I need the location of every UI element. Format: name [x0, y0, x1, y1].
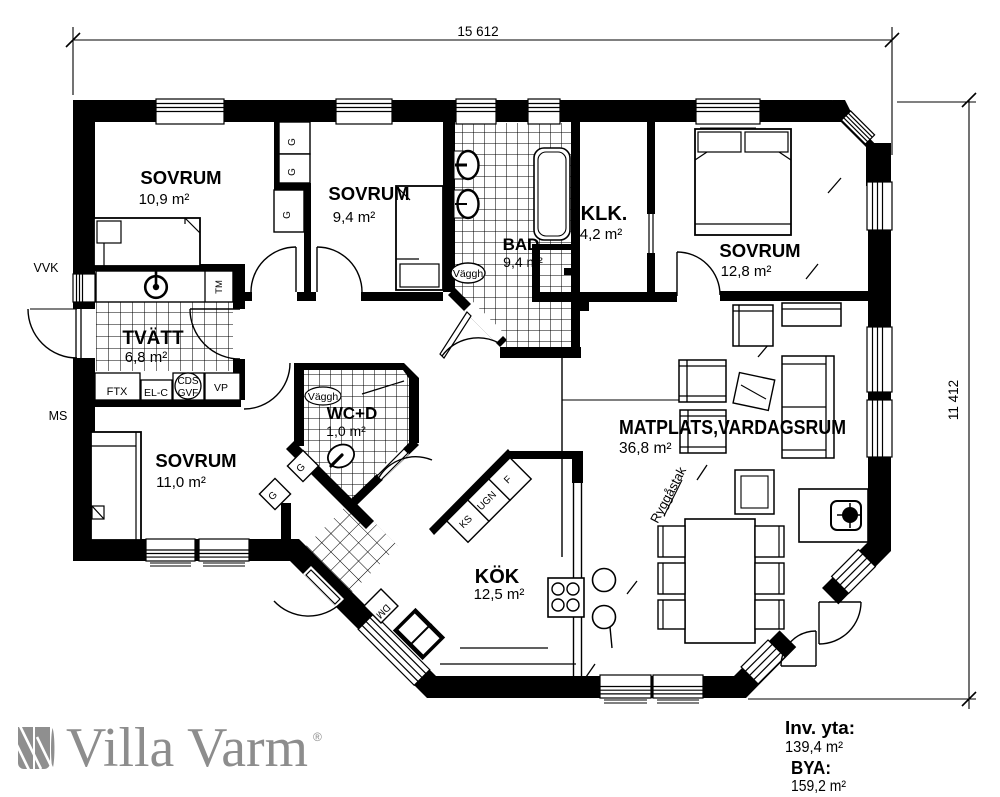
svg-text:11 412: 11 412	[946, 380, 961, 420]
svg-text:1,0 m²: 1,0 m²	[326, 423, 366, 439]
svg-text:KÖK: KÖK	[475, 565, 520, 588]
svg-text:SOVRUM: SOVRUM	[140, 167, 221, 188]
svg-text:G: G	[287, 138, 298, 146]
svg-text:GVF: GVF	[178, 388, 199, 399]
svg-text:SOVRUM: SOVRUM	[155, 450, 236, 471]
svg-text:G: G	[287, 168, 298, 176]
svg-text:159,2 m²: 159,2 m²	[791, 778, 846, 795]
svg-text:12,5 m²: 12,5 m²	[474, 586, 525, 603]
svg-text:CDS: CDS	[177, 376, 198, 387]
svg-text:MS: MS	[49, 409, 68, 423]
svg-text:VVK: VVK	[33, 261, 59, 275]
svg-text:MATPLATS,VARDAGSRUM: MATPLATS,VARDAGSRUM	[619, 417, 846, 439]
svg-text:Väggh: Väggh	[308, 391, 339, 403]
svg-text:12,8 m²: 12,8 m²	[721, 263, 772, 280]
svg-text:15 612: 15 612	[457, 24, 498, 39]
svg-text:6,8 m²: 6,8 m²	[125, 349, 168, 366]
svg-text:Väggh: Väggh	[453, 268, 484, 280]
svg-text:10,9 m²: 10,9 m²	[139, 191, 190, 208]
svg-text:11,0 m²: 11,0 m²	[156, 474, 206, 491]
svg-text:KLK.: KLK.	[581, 203, 628, 225]
svg-text:VP: VP	[214, 382, 228, 394]
svg-text:SOVRUM: SOVRUM	[328, 183, 409, 204]
svg-text:WC+D: WC+D	[327, 404, 378, 423]
svg-text:139,4 m²: 139,4 m²	[785, 739, 843, 756]
svg-text:TVÄTT: TVÄTT	[122, 328, 184, 349]
svg-text:BAD: BAD	[503, 235, 540, 254]
svg-text:9,4 m²: 9,4 m²	[333, 209, 376, 226]
svg-text:BYA:: BYA:	[791, 758, 831, 778]
svg-text:EL-C: EL-C	[144, 387, 168, 399]
svg-text:36,8 m²: 36,8 m²	[619, 440, 672, 457]
svg-text:®: ®	[313, 730, 322, 744]
svg-text:9,4 m²: 9,4 m²	[503, 254, 543, 270]
svg-text:Villa Varm: Villa Varm	[66, 717, 308, 779]
svg-text:Inv. yta:: Inv. yta:	[785, 718, 855, 738]
svg-text:4,2 m²: 4,2 m²	[580, 226, 623, 243]
svg-text:FTX: FTX	[107, 386, 128, 398]
svg-text:G: G	[282, 211, 293, 219]
svg-text:TM: TM	[214, 280, 225, 294]
svg-text:SOVRUM: SOVRUM	[719, 240, 800, 261]
